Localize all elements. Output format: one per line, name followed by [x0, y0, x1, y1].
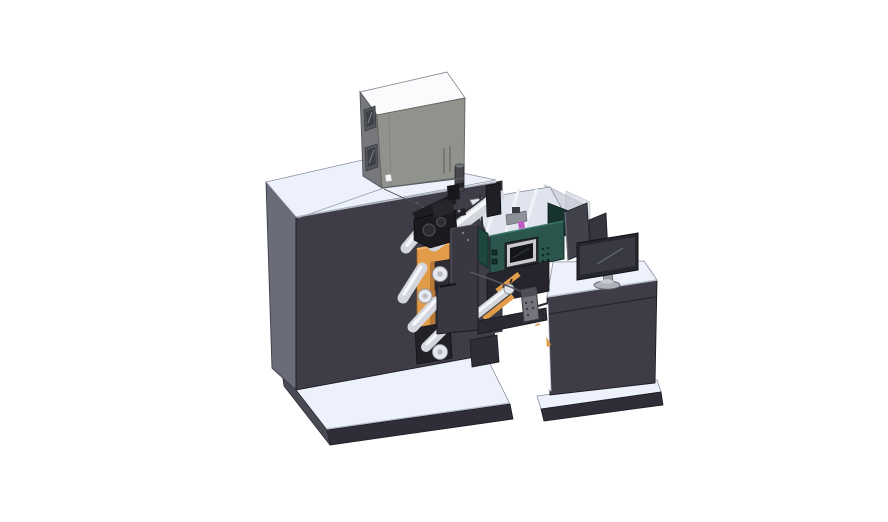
operator-desk [534, 261, 657, 395]
pendant-button [525, 302, 527, 304]
head-gear [423, 224, 435, 236]
hmi-key-switch [492, 259, 497, 264]
electrical-cabinet [360, 72, 465, 193]
roller-end-hub [437, 271, 443, 277]
head-gear [437, 218, 446, 227]
name-plate [385, 174, 392, 182]
bolt-dot [416, 202, 419, 205]
pendant-button [532, 307, 534, 309]
hmi-button [547, 247, 550, 250]
magenta-part [518, 221, 525, 229]
hmi-button [542, 254, 545, 257]
panel-bolt [467, 239, 469, 241]
machine-render: 3D CAD render of a roll-fed label printi… [0, 0, 888, 522]
roller-end-hub [437, 349, 443, 355]
pendant-button [526, 308, 528, 310]
pendant-button [527, 314, 529, 316]
head-cylinder [447, 184, 460, 201]
head-post [486, 183, 501, 217]
hmi-button [542, 248, 545, 251]
body-left-face [266, 182, 296, 390]
deck-carriage-head [512, 207, 520, 213]
cad-render-stage: 3D CAD render of a roll-fed label printi… [0, 0, 888, 522]
column-foot [470, 335, 499, 367]
hmi-key-switch [492, 250, 497, 255]
panel-bolt [462, 232, 464, 234]
head-clamp-pin [458, 210, 461, 213]
monitor-base-cap [601, 279, 614, 283]
hmi-button [547, 253, 550, 256]
roller-end-hub [423, 294, 428, 299]
pendant-button [531, 301, 533, 303]
desk-front-face [547, 280, 657, 395]
filter-cylinder-cap [455, 164, 464, 168]
